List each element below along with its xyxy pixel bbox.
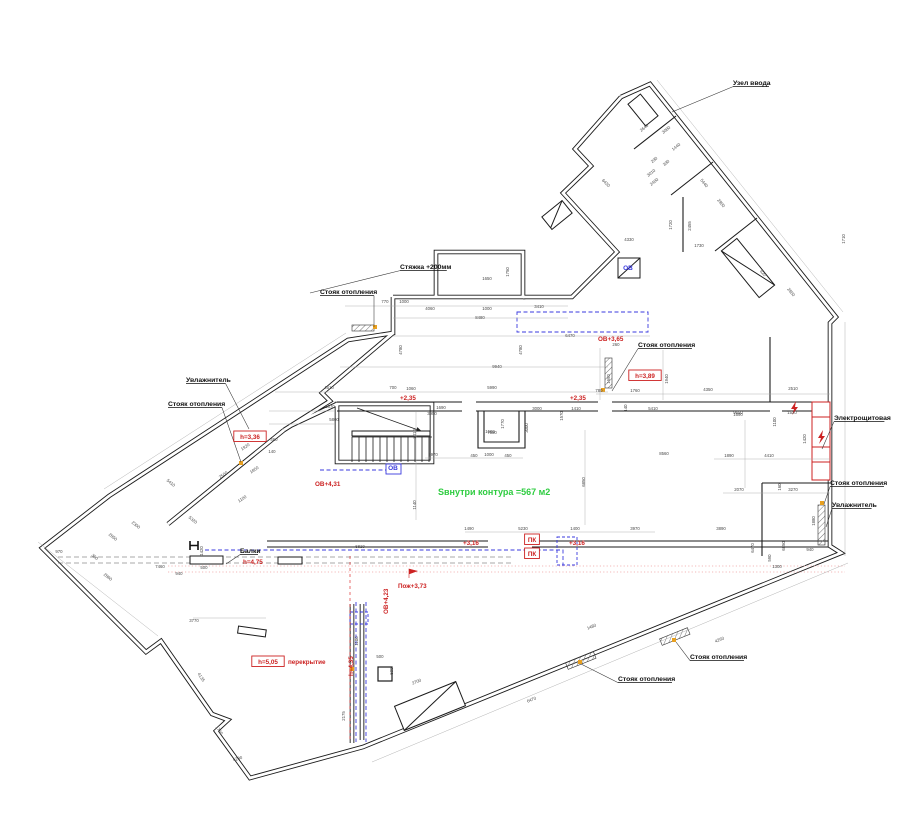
svg-text:ПК: ПК <box>528 551 537 558</box>
dim-text: 2510 <box>788 386 798 391</box>
dim-text: 940 <box>175 571 183 576</box>
dim-text: 1000 <box>484 452 494 457</box>
dim-text: 1440 <box>671 142 682 152</box>
dim-text: 460 <box>270 437 278 442</box>
dim-text: 2400 <box>649 177 660 187</box>
dim-text: 5230 <box>518 526 528 531</box>
callout-label: Стояк отопления <box>690 654 747 661</box>
dim-text: 4135 <box>196 672 206 683</box>
dim-text: 590 <box>767 554 772 562</box>
dim-text: 1490 <box>464 526 474 531</box>
dim-text: 500 <box>389 667 394 675</box>
dim-text: 3410 <box>534 304 544 309</box>
svg-text:h=3,36: h=3,36 <box>240 434 260 441</box>
svg-text:+2,35: +2,35 <box>570 395 586 402</box>
dim-text: 1940 <box>664 374 669 384</box>
svg-text:h=3,89: h=3,89 <box>635 373 655 380</box>
red-mark: ПК <box>525 534 540 545</box>
dim-text: 3010 <box>412 429 417 439</box>
dim-text: 940 <box>806 547 814 552</box>
dim-text: 2175 <box>341 711 346 721</box>
dim-text: 6850 <box>581 477 586 487</box>
svg-text:+3,16: +3,16 <box>463 540 479 547</box>
level-marks-layer: +2,35+2,35+3,16+3,16ОВ+3,65ОВ+4,31ОВ+4,2… <box>234 336 661 676</box>
red-mark: h=4,35 <box>348 656 355 676</box>
dim-text: 1880 <box>811 516 816 526</box>
svg-text:Пож+3,73: Пож+3,73 <box>398 583 427 590</box>
dim-text: 1850 <box>249 465 260 475</box>
dim-text: 500 <box>376 654 384 659</box>
dim-text: 6470 <box>565 333 575 338</box>
windows-layer <box>395 94 775 730</box>
dim-text: 2860 <box>103 572 114 582</box>
dim-text: 1410 <box>571 406 581 411</box>
dim-text: 4260 <box>714 635 725 643</box>
dim-text: 1580 <box>485 429 495 434</box>
dim-text: 3000 <box>524 423 529 433</box>
floor-plan-drawing: 1650175077010004060100034108480647047804… <box>0 0 897 830</box>
dim-text: 1420 <box>199 546 204 556</box>
dim-text: 6810 <box>355 544 365 549</box>
dim-text: 450 <box>470 453 478 458</box>
red-mark: h=4,75 <box>243 559 263 566</box>
svg-text:h=5,05: h=5,05 <box>258 659 278 666</box>
area-note: Sвнутри контура =567 м2 <box>438 487 550 497</box>
dim-text: 1690 <box>436 405 446 410</box>
red-mark: h=5,05 <box>252 656 284 667</box>
svg-text:h=4,75: h=4,75 <box>243 559 263 566</box>
dim-text: 1690 <box>606 374 611 384</box>
callout-label: Увлажнитель <box>186 377 231 384</box>
dim-text: 1100 <box>237 494 248 504</box>
dim-text: 4510 <box>324 385 334 390</box>
dim-text: 8480 <box>475 315 485 320</box>
dim-text: 5440 <box>699 178 709 189</box>
dim-text: 160 <box>777 483 782 491</box>
dim-text: 1420 <box>802 434 807 444</box>
radiators-layer <box>352 325 825 669</box>
floor-plan-canvas: 1650175077010004060100034108480647047804… <box>0 0 897 830</box>
dim-text: 1920 <box>240 442 251 452</box>
dim-text: 1300 <box>772 564 782 569</box>
callout-label: Стояк отопления <box>830 480 887 487</box>
dim-text: 2455 <box>687 221 692 231</box>
red-mark: Пож+3,73 <box>398 583 427 590</box>
dim-text: 2970 <box>428 452 438 457</box>
svg-text:ОВ+4,23: ОВ+4,23 <box>383 588 390 614</box>
dimension-texts-layer: 1650175077010004060100034108480647047804… <box>55 123 846 763</box>
red-mark: ОВ+3,65 <box>598 336 624 343</box>
dim-text: 770 <box>381 299 389 304</box>
callout-label: Стяжка +200мм <box>400 264 451 271</box>
dim-text: 3950 <box>427 411 437 416</box>
window-bottom <box>395 682 466 731</box>
dim-text: 140 <box>268 449 276 454</box>
dim-text: 1730 <box>694 243 704 248</box>
dim-text: 1140 <box>412 500 417 510</box>
callout-label: Стояк отопления <box>618 676 675 683</box>
dim-text: 2850 <box>786 287 796 298</box>
svg-text:ОВ+4,31: ОВ+4,31 <box>315 481 341 488</box>
red-mark: +3,16 <box>569 540 585 547</box>
dim-text: 5990 <box>487 385 497 390</box>
dim-text: 140 <box>623 404 628 412</box>
dim-text: 2700 <box>411 677 422 685</box>
red-mark: +2,35 <box>570 395 586 402</box>
dim-text: 1650 <box>482 276 492 281</box>
window-upperleft <box>542 201 572 230</box>
dim-text: 5800 <box>329 417 339 422</box>
dim-text: 1770 <box>500 419 505 429</box>
dim-text: 1100 <box>772 417 777 427</box>
dim-text: 5670 <box>325 404 335 409</box>
callout-leader <box>672 87 733 112</box>
callout-label: Стояк отопления <box>638 342 695 349</box>
fire-flag-icon <box>409 569 417 578</box>
svg-text:+2,35: +2,35 <box>400 395 416 402</box>
dim-text: 6470 <box>526 695 537 703</box>
dim-text: 1480 <box>586 622 597 630</box>
riser-dots <box>239 325 824 671</box>
dim-text: 3010 <box>646 168 657 178</box>
callout-label: Увлажнитель <box>832 502 877 509</box>
h-beam-symbol <box>190 541 198 550</box>
dim-text: 300 <box>91 553 100 562</box>
dim-text: 7460 <box>155 564 165 569</box>
dim-text: 6470 <box>750 543 755 553</box>
dim-text: 3270 <box>788 487 798 492</box>
dim-text: 780 <box>595 388 603 393</box>
dim-text: 5410 <box>166 478 177 488</box>
dim-text: 6850 <box>781 541 786 551</box>
stairs <box>352 408 432 462</box>
dim-text: 5410 <box>648 406 658 411</box>
dim-text: 1570 <box>559 411 564 421</box>
svg-text:перекрытие: перекрытие <box>288 659 326 666</box>
dim-text: 5320 <box>188 515 199 525</box>
red-mark: ОВ+4,23 <box>383 588 390 614</box>
duct-label: ОВ <box>388 465 398 472</box>
dim-text: 1720 <box>668 220 673 230</box>
hvac-blue-layer <box>205 312 648 742</box>
callout-label: Балки <box>240 548 261 555</box>
dim-text: 6430 <box>601 178 612 189</box>
dim-text: 1100 <box>354 636 359 646</box>
dim-text: 2900 <box>716 198 726 209</box>
dim-text: 1000 <box>399 299 409 304</box>
red-mark: h=3,36 <box>234 431 266 442</box>
dim-text: 1690 <box>733 412 743 417</box>
red-mark: ОВ+4,31 <box>315 481 341 488</box>
dim-text: 4410 <box>764 453 774 458</box>
walls-layer <box>42 84 841 778</box>
red-mark: +3,16 <box>463 540 479 547</box>
beams-layer <box>58 541 512 637</box>
callout-label: Стояк отопления <box>320 289 377 296</box>
callout-leader <box>226 555 240 564</box>
dim-text: 500 <box>200 565 208 570</box>
callouts-layer: Узел вводаСтяжка +200ммСтояк отопленияУв… <box>168 80 891 683</box>
dim-text: 9940 <box>492 364 502 369</box>
dim-text: 1760 <box>630 388 640 393</box>
window-topright <box>721 238 774 297</box>
dim-text: 4330 <box>624 237 634 242</box>
dim-text: 1060 <box>406 386 416 391</box>
duct-label: ОВ <box>623 265 633 272</box>
dim-text: 290 <box>650 155 659 164</box>
dim-text: 3000 <box>532 406 542 411</box>
dim-text: 8560 <box>659 451 669 456</box>
dim-text: 970 <box>55 549 63 554</box>
red-mark: h=3,89 <box>629 370 661 381</box>
dim-text: 1890 <box>724 453 734 458</box>
dim-text: 1400 <box>570 526 580 531</box>
dim-text: 2850 <box>108 532 119 542</box>
dim-text: 4350 <box>703 387 713 392</box>
svg-text:+3,16: +3,16 <box>569 540 585 547</box>
svg-text:ОВ+3,65: ОВ+3,65 <box>598 336 624 343</box>
dim-text: 1750 <box>505 267 510 277</box>
callout-label: Стояк отопления <box>168 401 225 408</box>
dim-text: 1710 <box>841 234 846 244</box>
dim-text: 3890 <box>716 526 726 531</box>
window-entry <box>628 94 658 126</box>
red-mark: +2,35 <box>400 395 416 402</box>
dim-text: 390 <box>662 158 671 167</box>
dim-text: 3770 <box>189 618 199 623</box>
dim-text: 450 <box>504 453 512 458</box>
dim-text: 4780 <box>518 345 523 355</box>
dim-text: 2300 <box>131 520 142 530</box>
dim-text: 1000 <box>482 306 492 311</box>
dim-text: 4060 <box>425 306 435 311</box>
callout-leader <box>676 642 690 661</box>
svg-text:ПК: ПК <box>528 537 537 544</box>
dim-text: 700 <box>389 385 397 390</box>
dim-text: 1520 <box>787 410 797 415</box>
dim-text: 3970 <box>630 526 640 531</box>
callout-label: Узел ввода <box>733 80 771 87</box>
red-mark: перекрытие <box>288 659 326 666</box>
dim-text: 4780 <box>398 345 403 355</box>
red-mark: ПК <box>525 548 540 559</box>
dim-text: 2070 <box>734 487 744 492</box>
svg-text:h=4,35: h=4,35 <box>348 656 355 676</box>
callout-label: Электрощитовая <box>834 415 891 422</box>
